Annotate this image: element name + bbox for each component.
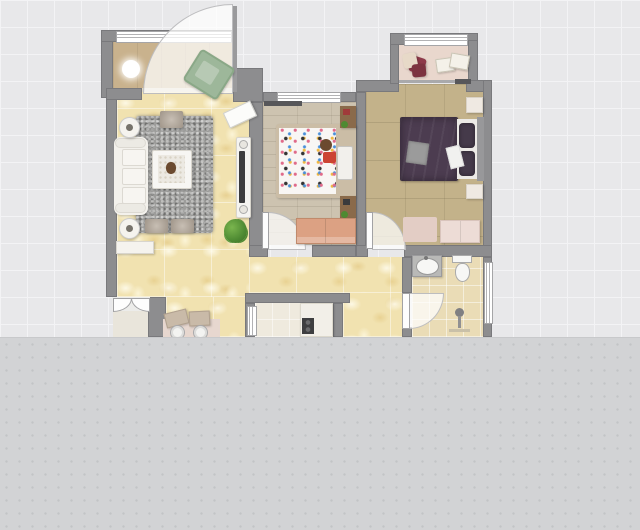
children-pillow (337, 146, 353, 180)
nightstand-plant (341, 121, 348, 128)
sink-basin[interactable] (416, 258, 439, 275)
master-pillow-top (459, 123, 475, 148)
wall-living-top-stub (106, 88, 142, 100)
sofa-cushion (122, 187, 146, 204)
wall-bathroom-left (402, 257, 412, 293)
master-pink-rug[interactable] (403, 217, 437, 242)
children-nightstand-bottom[interactable] (340, 196, 356, 218)
sink-faucet (424, 256, 428, 260)
wall-master-balcony-right (468, 40, 478, 84)
master-nightstand-top[interactable] (466, 97, 483, 113)
sofa-armrest-bottom (115, 203, 146, 213)
children-bed[interactable] (276, 124, 356, 198)
table-lamp (126, 225, 133, 232)
wall-children-bottom-right (312, 245, 356, 257)
teddy-bear (320, 139, 332, 151)
kitchen-window[interactable] (247, 306, 257, 336)
master-curtain-bunch[interactable] (455, 79, 471, 84)
wall-master-balcony-left (390, 40, 399, 84)
shower-drain-strip (449, 329, 470, 332)
children-nightstand-top[interactable] (340, 106, 356, 128)
nightstand-decor (343, 199, 350, 205)
sofa-armrest-top (115, 138, 146, 148)
children-door-leaf[interactable] (262, 212, 269, 249)
ottoman-bottom-right[interactable] (171, 219, 194, 233)
wall-kitchen-right (333, 303, 343, 337)
coffee-table[interactable] (152, 150, 192, 189)
shoe-cabinet[interactable] (116, 241, 154, 254)
wall-living-children (249, 102, 263, 257)
balcony-pillow-maroon[interactable] (411, 63, 426, 77)
armchair-seat-cushion (194, 60, 220, 85)
ottoman-top[interactable] (160, 111, 183, 128)
master-nightstand-bottom[interactable] (466, 184, 483, 199)
hallway-floor (249, 257, 402, 293)
sofa-cushion (122, 168, 146, 185)
bathroom-door-leaf[interactable] (402, 293, 410, 329)
gray-blanket (406, 141, 430, 166)
toilet-bowl[interactable] (455, 263, 470, 282)
shower-stem (458, 316, 461, 328)
table-lamp (126, 124, 133, 131)
ottoman-bottom-left[interactable] (145, 219, 168, 233)
master-door-leaf[interactable] (366, 212, 373, 249)
nightstand-plant (341, 211, 348, 218)
potted-plant[interactable] (224, 219, 247, 243)
master-balcony-window[interactable] (404, 34, 468, 46)
tv-screen[interactable] (239, 151, 245, 203)
wall-master-right (483, 80, 492, 257)
wall-entry-pillar (233, 68, 263, 102)
console-decor-bottom (239, 205, 248, 214)
children-curtain-bunch[interactable] (264, 101, 302, 106)
wall-kitchen-top (245, 293, 350, 303)
teddy-decor (166, 162, 176, 174)
bathroom-window[interactable] (484, 262, 493, 324)
sofa[interactable] (114, 137, 148, 215)
console-decor-top (239, 140, 248, 149)
canvas-lower-mask (0, 337, 640, 530)
sofa-cushion (122, 149, 146, 166)
cooktop[interactable] (302, 318, 314, 334)
hallway-floor-bath-corridor (343, 293, 402, 337)
nightstand-decor (343, 109, 350, 115)
master-dresser[interactable] (440, 220, 480, 243)
children-dresser[interactable] (296, 218, 356, 244)
design-canvas (0, 0, 640, 530)
side-table-bottom[interactable] (119, 218, 140, 239)
toilet-tank[interactable] (452, 255, 472, 263)
master-headboard (477, 117, 484, 181)
entry-door-leaf[interactable] (233, 6, 237, 92)
wall-children-master (356, 92, 366, 257)
side-table-top[interactable] (119, 117, 140, 138)
balcony-cushion-right[interactable] (449, 52, 470, 70)
paper-lantern[interactable] (122, 60, 140, 78)
red-blanket (323, 152, 336, 163)
outside-balcony-pad (113, 311, 150, 337)
